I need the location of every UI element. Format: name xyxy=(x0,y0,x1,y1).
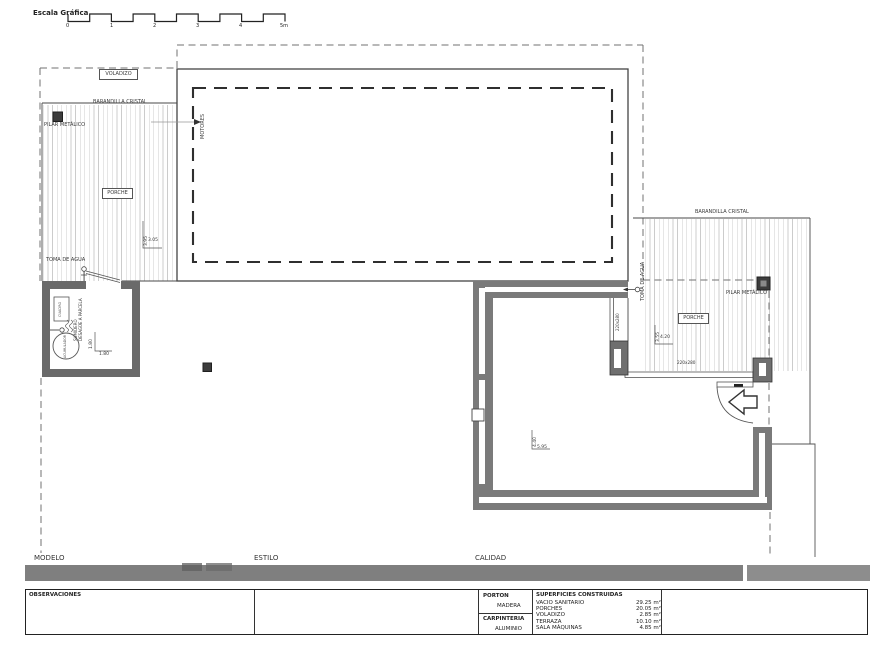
footer-table: OBSERVACIONES PORTON MADERA CARPINTERIA … xyxy=(25,589,868,635)
footer-bar-smudge xyxy=(182,563,202,571)
dim-room-h: 1.80 xyxy=(99,353,109,358)
footer-bar-smudge xyxy=(206,563,232,571)
superficies-title: SUPERFICIES CONSTRUIDAS xyxy=(536,593,623,599)
calidad-label: CALIDAD xyxy=(475,555,506,562)
aluminio-label: ALUMINIO xyxy=(495,627,522,633)
window-tag-side-label: 220x280 xyxy=(616,313,620,331)
observaciones-label: OBSERVACIONES xyxy=(29,593,81,599)
scale-bar-title: Escala Gráfica xyxy=(33,10,88,17)
porche-right-label: PORCHE xyxy=(678,313,709,324)
table-divider xyxy=(532,590,533,634)
table-hdivider xyxy=(478,613,532,614)
valve-symbol-head xyxy=(60,328,64,332)
pilar-right-label: PILAR METÁLICO xyxy=(726,291,767,296)
footer-gray-bar-right xyxy=(747,565,870,581)
footer-gray-bar-left xyxy=(25,565,743,581)
left-wall-window xyxy=(472,409,484,421)
scale-tick-4: 4 xyxy=(239,24,242,29)
scale-tick-2: 2 xyxy=(153,24,156,29)
scale-bar xyxy=(68,14,285,22)
porton-label: PORTON xyxy=(483,594,509,600)
voladizo-label: VOLADIZO xyxy=(99,69,138,80)
dim-porch-right-h: 4.20 xyxy=(660,336,670,341)
table-row: SALA MÁQUINAS 4.85 m² xyxy=(536,625,661,631)
tank-label: ACUMULADOR xyxy=(64,335,67,358)
modelo-label: MODELO xyxy=(34,555,65,562)
porch-window-sill xyxy=(625,372,753,378)
terraza-wall-channels xyxy=(479,287,767,503)
area-value: 4.85 m² xyxy=(639,625,661,631)
dim-room-v: 1.80 xyxy=(90,339,95,349)
table-divider xyxy=(661,590,662,634)
panel-label: CUADRO xyxy=(59,302,63,317)
pool-outline xyxy=(177,69,628,281)
terraza-window-lines xyxy=(610,298,614,341)
terraza-walls xyxy=(473,281,772,510)
floor-plan-drawing xyxy=(0,0,870,652)
scale-tick-0: 0 xyxy=(66,24,69,29)
table-divider xyxy=(254,590,255,634)
machine-room-door-leaf xyxy=(86,271,120,283)
carpinteria-label: CARPINTERIA xyxy=(483,617,524,623)
madera-label: MADERA xyxy=(497,604,521,610)
scale-tick-5: 5m xyxy=(280,24,288,29)
step-outline xyxy=(772,444,815,557)
barandilla-left-label: BARANDILLA CRISTAL xyxy=(93,100,147,105)
machine-room-door-opening xyxy=(86,281,121,290)
barandilla-right-label: BARANDILLA CRISTAL xyxy=(695,210,749,215)
scale-tick-3: 3 xyxy=(196,24,199,29)
toma-agua-right-label: TOMA DE AGUA xyxy=(641,262,646,301)
door-threshold xyxy=(734,384,743,387)
dim-porch-left-h: 3.05 xyxy=(148,239,158,244)
area-name: SALA MÁQUINAS xyxy=(536,625,639,631)
motores-label: MOTORES xyxy=(201,114,206,139)
entrance-arrow-icon xyxy=(729,390,757,414)
floor-plan-page: Escala Gráfica 0 1 2 3 4 5m VOLADIZO BAR… xyxy=(0,0,870,652)
estilo-label: ESTILO xyxy=(254,555,278,562)
superficies-list: VACIO SANITARIO 29.25 m² PORCHES 20.05 m… xyxy=(536,600,661,632)
table-divider xyxy=(478,590,479,634)
scale-tick-1: 1 xyxy=(110,24,113,29)
drain-label: SUMIDERO DESAGÜE A PARCELA xyxy=(73,298,83,341)
pilar-left-label: PILAR METÁLICO xyxy=(44,123,85,128)
dim-terraza-h: 5.95 xyxy=(537,446,547,451)
porche-left-label: PORCHE xyxy=(102,188,133,199)
toma-agua-left-label: TOMA DE AGUA xyxy=(46,258,85,263)
window-tag-label: 220x280 xyxy=(677,361,695,365)
